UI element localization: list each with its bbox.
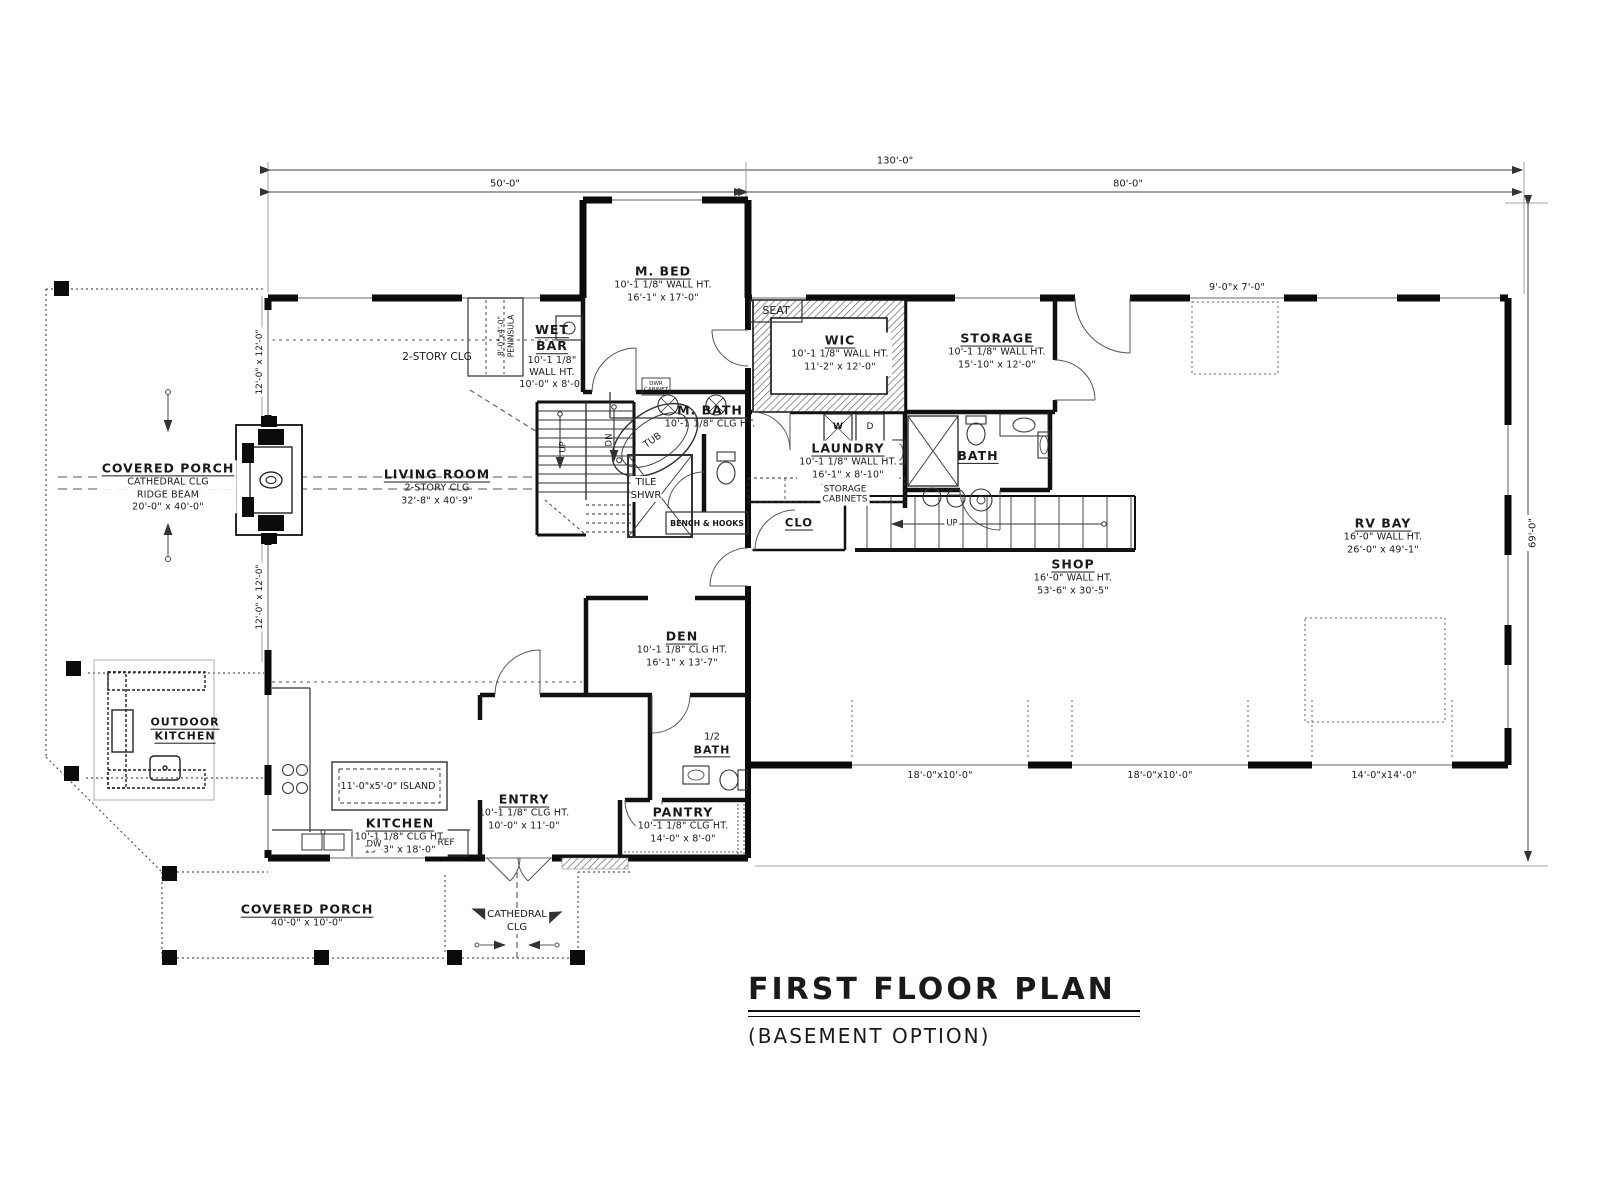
hatch-areas xyxy=(562,300,905,869)
island-label: 11'-0"x5'-0" ISLAND xyxy=(341,781,436,793)
room-label-rv-bay: RV BAY 16'-0" WALL HT. 26'-0" x 49'-1" xyxy=(1344,516,1422,557)
room-label-wic: WIC 10'-1 1/8" WALL HT. 11'-2" x 12'-0" xyxy=(789,333,891,374)
floor-plan-page: 130'-0" 50'-0" 80'-0" 69'-0" 12'-0" x 12… xyxy=(0,0,1600,1200)
room-label-half-bath: 1/2 BATH xyxy=(694,730,731,757)
room-label-laundry: LAUNDRY 10'-1 1/8" WALL HT. 16'-1" x 8'-… xyxy=(797,441,899,482)
page-subtitle: (BASEMENT OPTION) xyxy=(748,1024,1148,1048)
fridge-label: REF xyxy=(437,838,454,850)
room-label-covered-porch-bottom: COVERED PORCH 40'-0" x 10'-0" xyxy=(241,902,374,931)
room-label-storage: STORAGE 10'-1 1/8" WALL HT. 15'-10" x 12… xyxy=(948,331,1046,372)
tile-shower-label: TILE SHWR xyxy=(631,476,662,502)
room-label-pantry: PANTRY 10'-1 1/8" CLG HT. 14'-0" x 8'-0" xyxy=(636,805,731,846)
stair-dn-label: DN xyxy=(604,434,615,447)
room-label-shop: SHOP 16'-0" WALL HT. 53'-6" x 30'-5" xyxy=(1034,557,1112,598)
dimension-drawing xyxy=(262,162,1548,866)
room-label-wet-bar: WET BAR 10'-1 1/8" WALL HT. 10'-0" x 8'-… xyxy=(519,322,585,392)
bench-hooks-label: BENCH & HOOKS xyxy=(670,519,744,529)
dim-width-right: 80'-0" xyxy=(1110,178,1146,191)
dryer-label: D xyxy=(867,422,874,434)
dim-overall-depth: 69'-0" xyxy=(1527,515,1540,551)
title-underline xyxy=(748,1010,1140,1017)
dim-garage-door-mid: 18'-0"x10'-0" xyxy=(1127,770,1192,782)
stair-up-label: UP xyxy=(558,441,569,452)
room-label-entry: ENTRY 10'-1 1/8" CLG HT. 10'-0" x 11'-0" xyxy=(479,792,570,833)
dim-garage-door-right: 14'-0"x14'-0" xyxy=(1351,770,1416,782)
dwr-cabinet-label: DWR CABINET xyxy=(644,381,668,393)
room-label-clo: CLO xyxy=(785,516,813,531)
seat-label: SEAT xyxy=(762,304,789,318)
shop-stair-up-label: UP xyxy=(944,518,959,529)
room-label-den: DEN 10'-1 1/8" CLG HT. 16'-1" x 13'-7" xyxy=(637,629,728,670)
dishwasher-label: DW xyxy=(367,839,382,850)
storage-cabinets-label: STORAGE CABINETS xyxy=(821,485,870,506)
cathedral-clg-label: CATHEDRAL CLG xyxy=(485,908,549,934)
dim-garage-door-left: 18'-0"x10'-0" xyxy=(907,770,972,782)
room-label-outdoor-kitchen: OUTDOOR KITCHEN xyxy=(150,716,219,745)
room-label-living-room: LIVING ROOM 2-STORY CLG 32'-8" x 40'-9" xyxy=(384,467,490,508)
room-label-m-bed: M. BED 10'-1 1/8" WALL HT. 16'-1" x 17'-… xyxy=(614,264,712,305)
peninsula-label: 8'-0"x4'-0" PENINSULA xyxy=(496,315,516,357)
dim-rv-overhead-door: 9'-0"x 7'-0" xyxy=(1209,282,1265,294)
dim-width-left: 50'-0" xyxy=(487,178,523,191)
dim-overall-width: 130'-0" xyxy=(874,155,916,168)
page-title: FIRST FLOOR PLAN xyxy=(748,972,1148,1007)
room-label-bath: BATH xyxy=(957,448,998,464)
two-story-clg-label: 2-STORY CLG xyxy=(402,351,472,365)
dim-porch-bay-lower: 12'-0" x 12'-0" xyxy=(255,562,267,631)
room-label-m-bath: M. BATH 10'-1 1/8" CLG HT. xyxy=(665,403,756,432)
title-block: FIRST FLOOR PLAN (BASEMENT OPTION) xyxy=(748,972,1148,1048)
dim-porch-bay-upper: 12'-0" x 12'-0" xyxy=(255,327,267,396)
room-label-covered-porch-left: COVERED PORCH CATHEDRAL CLG RIDGE BEAM 2… xyxy=(100,460,237,513)
fireplace xyxy=(236,416,302,544)
washer-label: W xyxy=(833,422,843,434)
